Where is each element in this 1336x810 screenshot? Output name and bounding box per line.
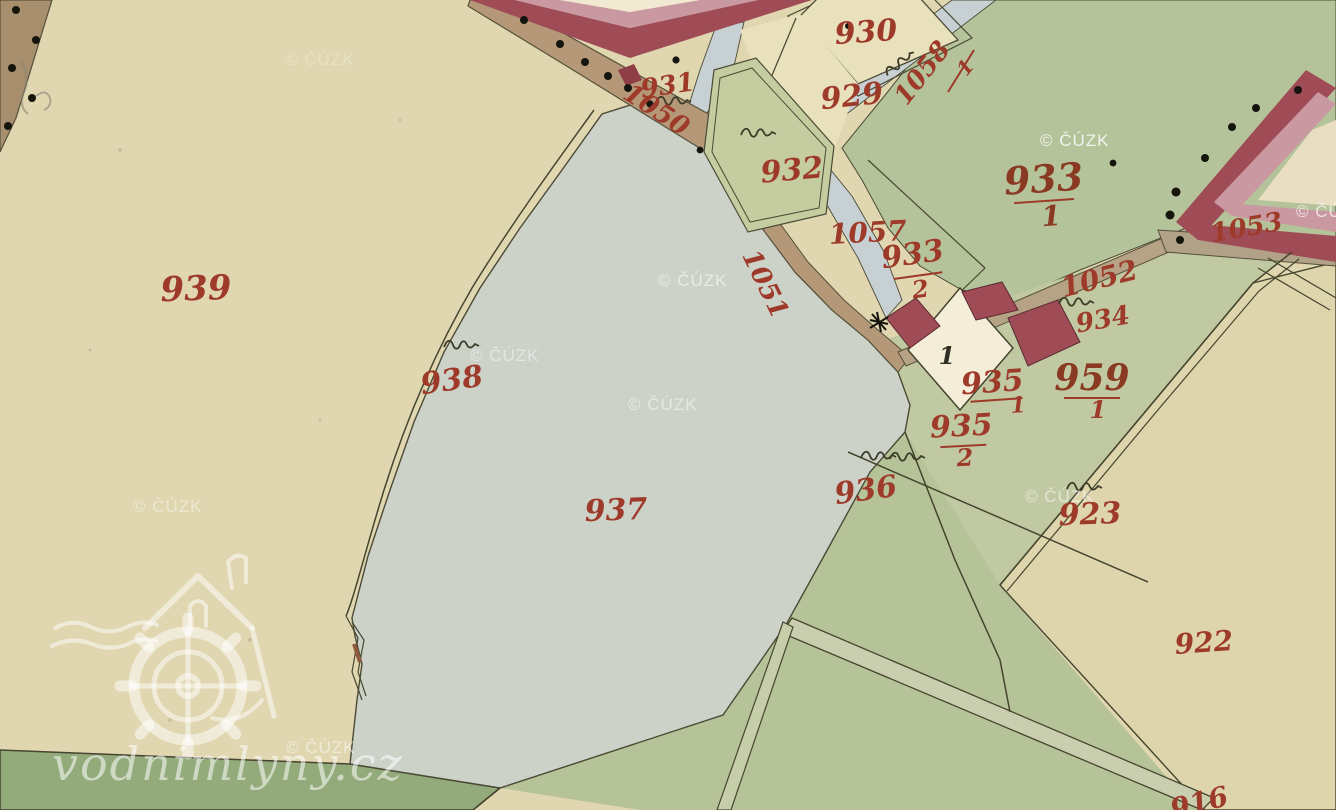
tree-dot xyxy=(556,40,564,48)
cuzk-watermark: © ČÚZK xyxy=(658,271,728,290)
tree-dot xyxy=(1166,211,1175,220)
cuzk-watermark: © ČÚZK xyxy=(1040,131,1110,150)
parcel-label-933-1-num: 933 xyxy=(1002,153,1084,203)
tree-dot xyxy=(1201,154,1209,162)
site-watermark: vodnimlyny.cz xyxy=(52,737,404,791)
tree-dot xyxy=(4,122,12,130)
cuzk-watermark: © ČÚZK xyxy=(628,395,698,414)
tree-dot xyxy=(32,36,40,44)
parcel-label-930: 930 xyxy=(833,13,898,52)
parcel-label-929: 929 xyxy=(819,76,885,117)
cuzk-watermark: © ČÚZK xyxy=(133,497,203,516)
tree-dot xyxy=(8,64,16,72)
map-drawing: 939 938 937 936 930 929 931 932 934 923 … xyxy=(0,0,1336,810)
tree-dot xyxy=(672,56,679,63)
tree-dot xyxy=(1228,123,1236,131)
house-number-1: 1 xyxy=(939,341,956,370)
cuzk-watermark: © ČÚZK xyxy=(285,50,355,69)
tree-dot xyxy=(697,147,704,154)
road-label-1057: 1057 xyxy=(828,214,908,251)
parcel-label-933-1-den: 1 xyxy=(1040,199,1062,233)
cadastral-map-canvas[interactable]: 939 938 937 936 930 929 931 932 934 923 … xyxy=(0,0,1336,810)
parcel-label-935-2-num: 935 xyxy=(929,407,993,445)
parcel-label-935-2-den: 2 xyxy=(955,442,974,472)
parcel-label-932: 932 xyxy=(759,150,824,190)
tree-dot xyxy=(12,6,20,14)
parcel-label-937: 937 xyxy=(584,492,648,529)
cuzk-watermark: © ČÚZK xyxy=(1025,487,1095,506)
mill-waterwheel xyxy=(120,618,256,754)
parcel-label-935-1-den: 1 xyxy=(1009,392,1026,419)
cuzk-watermark: © ČÚZK xyxy=(1296,202,1336,221)
tree-dot xyxy=(1110,160,1117,167)
parcel-label-959-1-num: 959 xyxy=(1054,357,1129,399)
parcel-label-959-1-den: 1 xyxy=(1090,395,1107,424)
tree-dot xyxy=(1294,86,1302,94)
parcel-label-939: 939 xyxy=(160,268,232,310)
parcel-label-922: 922 xyxy=(1174,624,1235,661)
tree-dot xyxy=(604,72,612,80)
tree-dot xyxy=(1172,188,1181,197)
tree-dot xyxy=(581,58,589,66)
tree-dot xyxy=(1176,236,1184,244)
tree-dot xyxy=(520,16,528,24)
cuzk-watermark: © ČÚZK xyxy=(470,346,540,365)
tree-dot xyxy=(1252,104,1260,112)
tree-dot xyxy=(28,94,36,102)
